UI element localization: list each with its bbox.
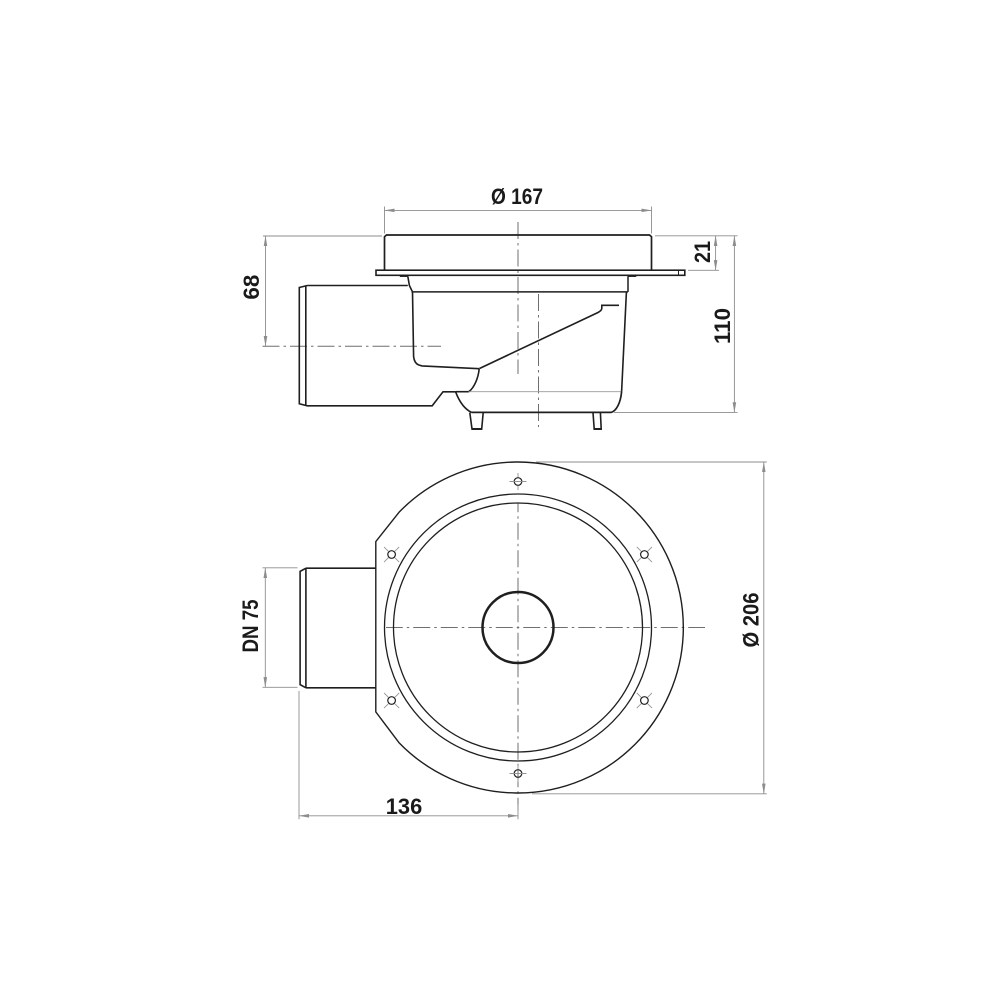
svg-text:136: 136 [386, 794, 423, 819]
svg-text:DN 75: DN 75 [238, 600, 263, 653]
svg-text:Ø 167: Ø 167 [491, 184, 543, 209]
svg-text:110: 110 [710, 308, 735, 344]
svg-text:Ø 206: Ø 206 [739, 593, 764, 648]
svg-text:21: 21 [690, 241, 715, 263]
svg-text:68: 68 [239, 275, 264, 300]
